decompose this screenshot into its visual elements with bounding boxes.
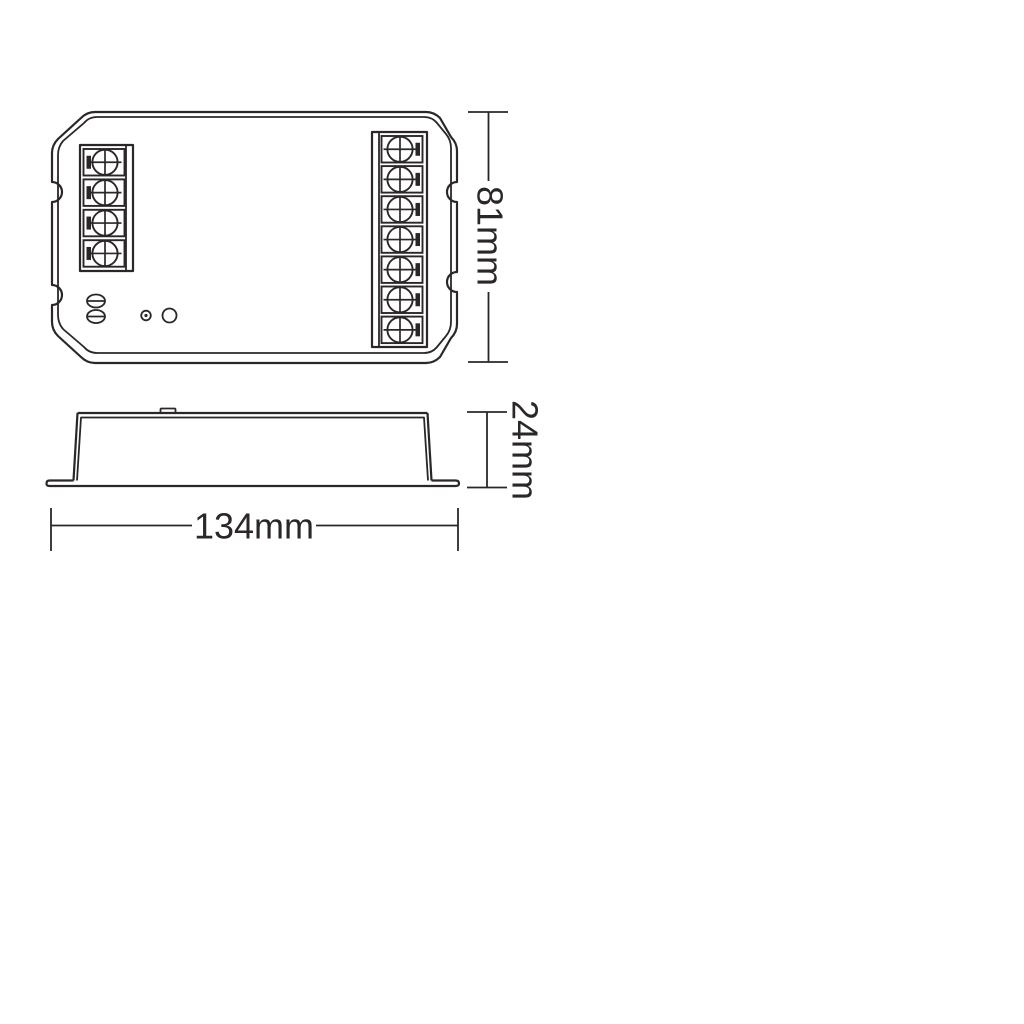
- side-inner-seam: [77, 418, 428, 481]
- screw-terminal: [382, 166, 423, 194]
- phillips-screw-icon: [89, 209, 122, 237]
- enclosure-inner-outline: [58, 117, 451, 353]
- top-view: [52, 112, 457, 363]
- phillips-screw-icon: [384, 166, 417, 194]
- screw-terminal: [382, 286, 423, 314]
- screw-terminal: [382, 316, 423, 344]
- phillips-screw-icon: [384, 286, 417, 314]
- screw-terminal: [84, 240, 125, 268]
- button-icon: [163, 309, 177, 323]
- screw-terminal: [382, 256, 423, 284]
- side-base-flanges: [47, 481, 460, 487]
- phillips-screw-icon: [384, 316, 417, 344]
- phillips-screw-icon: [384, 256, 417, 284]
- phillips-screw-icon: [384, 196, 417, 224]
- screw-terminal: [382, 226, 423, 254]
- screw-terminal: [84, 179, 125, 207]
- dimension-drawing-page: 81mm 24mm 134mm: [0, 0, 1024, 1024]
- dimension-height: 81mm: [468, 112, 511, 362]
- screw-terminal: [84, 209, 125, 237]
- dimension-width: 134mm: [51, 506, 458, 552]
- left-terminal-block: [80, 145, 133, 271]
- phillips-screw-icon: [384, 135, 417, 163]
- phillips-screw-icon: [89, 148, 122, 176]
- phillips-screw-icon: [384, 226, 417, 254]
- left-terminal-screws: [84, 148, 125, 267]
- dimension-depth-label: 24mm: [505, 400, 546, 500]
- right-terminal-screws: [382, 135, 423, 343]
- phillips-screw-icon: [89, 240, 122, 268]
- screw-terminal: [382, 196, 423, 224]
- dimension-width-label: 134mm: [194, 506, 314, 547]
- dimension-drawing: 81mm 24mm 134mm: [0, 0, 1024, 1024]
- phillips-screw-icon: [89, 179, 122, 207]
- slotted-screw-icon: [87, 295, 105, 308]
- slotted-screw-icon: [87, 310, 105, 323]
- dimension-height-label: 81mm: [470, 186, 511, 286]
- led-indicator-icon: [141, 311, 151, 321]
- right-terminal-block: [372, 132, 427, 347]
- screw-terminal: [84, 148, 125, 176]
- side-view: [47, 409, 460, 487]
- dimension-depth: 24mm: [467, 400, 546, 500]
- slotted-screws: [87, 295, 105, 324]
- screw-terminal: [382, 135, 423, 163]
